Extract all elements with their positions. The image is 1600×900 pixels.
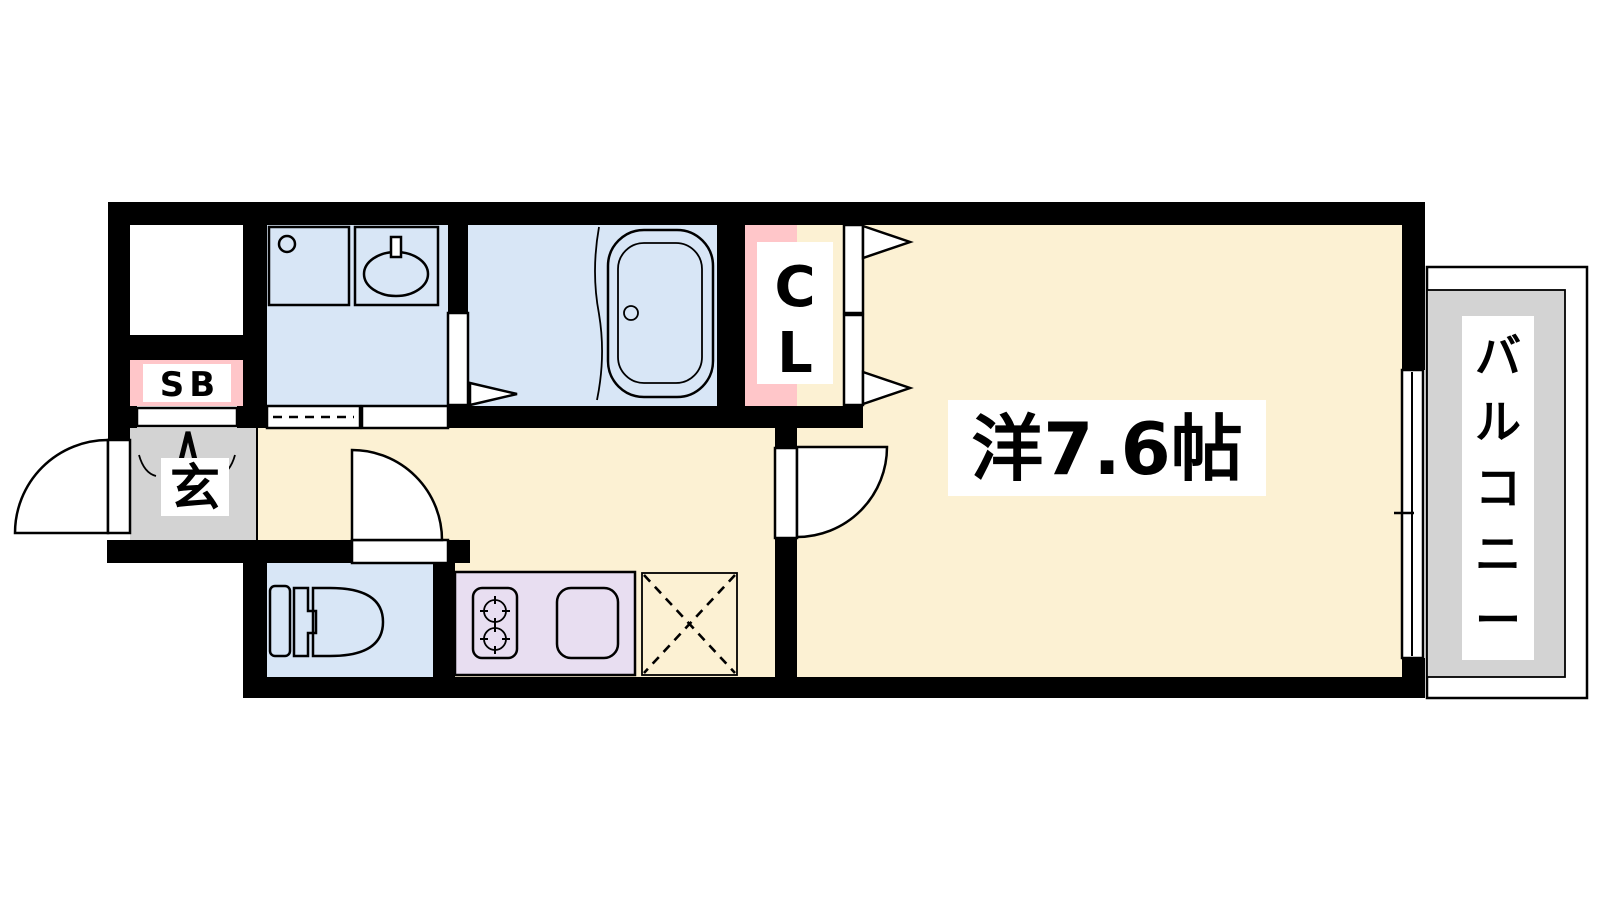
wall-left-lower: [243, 540, 267, 698]
entrance-label: 玄: [170, 459, 220, 517]
wall-right-lower: [1402, 658, 1425, 698]
washroom-opening: [362, 406, 448, 428]
shoe-box-label: SB: [160, 365, 220, 405]
washroom-floor: [267, 225, 448, 407]
vanity-faucet: [391, 237, 401, 257]
entrance-step: [137, 408, 237, 426]
wall-top: [108, 202, 1425, 225]
wall-bottom: [243, 677, 1425, 698]
toilet-door-opening: [352, 540, 448, 563]
toilet-floor: [267, 563, 433, 677]
hallway-floor: [257, 428, 775, 540]
main-room-door-leaf: [775, 448, 797, 538]
wall-column-divider: [243, 202, 267, 428]
wall-service-room-bottom: [130, 335, 243, 360]
service-room-floor: [130, 225, 243, 335]
wall-washroom-bath: [448, 225, 468, 313]
wall-right-upper: [1402, 202, 1425, 370]
wall-bath-closet: [717, 225, 745, 407]
closet-label: CL: [774, 255, 815, 386]
balcony-label: バルコニー: [1475, 329, 1521, 647]
wall-main-left-lower: [775, 538, 797, 677]
bathroom-floor: [468, 225, 717, 407]
entrance-door-leaf: [108, 440, 130, 533]
floorplan-canvas: SB 玄 CL 洋7.6帖 バルコニー: [0, 0, 1600, 900]
floorplan-svg: SB 玄 CL 洋7.6帖 バルコニー: [0, 0, 1600, 900]
closet-door-panel-bottom: [844, 315, 863, 405]
wall-left-upper: [108, 202, 130, 440]
main-room-label: 洋7.6帖: [971, 407, 1243, 491]
entrance-door-swing: [15, 440, 108, 533]
wall-toilet-kitchen: [433, 563, 455, 677]
wall-main-door-stub: [775, 428, 797, 448]
closet-door-panel-top: [844, 225, 863, 313]
bathroom-door-leaf: [448, 313, 468, 405]
